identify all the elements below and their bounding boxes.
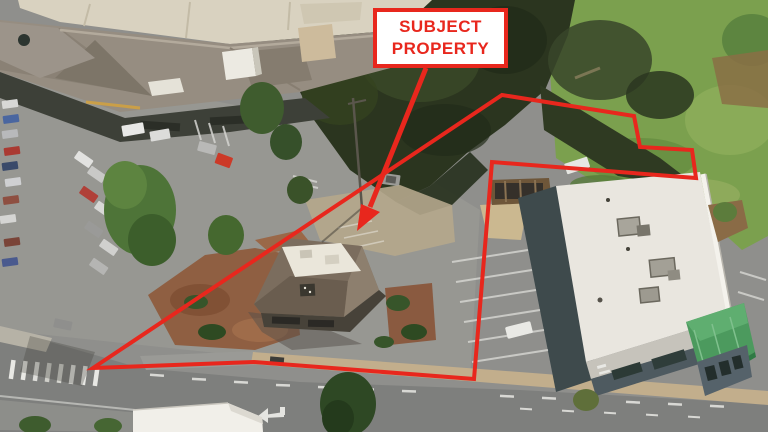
roof-vent [300,284,316,297]
retail-building [518,172,756,396]
subject-property-label: SUBJECT PROPERTY [381,16,501,61]
subject-property-callout: SUBJECT PROPERTY [373,8,508,68]
store-logo [18,34,30,46]
aerial-photo-exhibit: SUBJECT PROPERTY [0,0,768,432]
